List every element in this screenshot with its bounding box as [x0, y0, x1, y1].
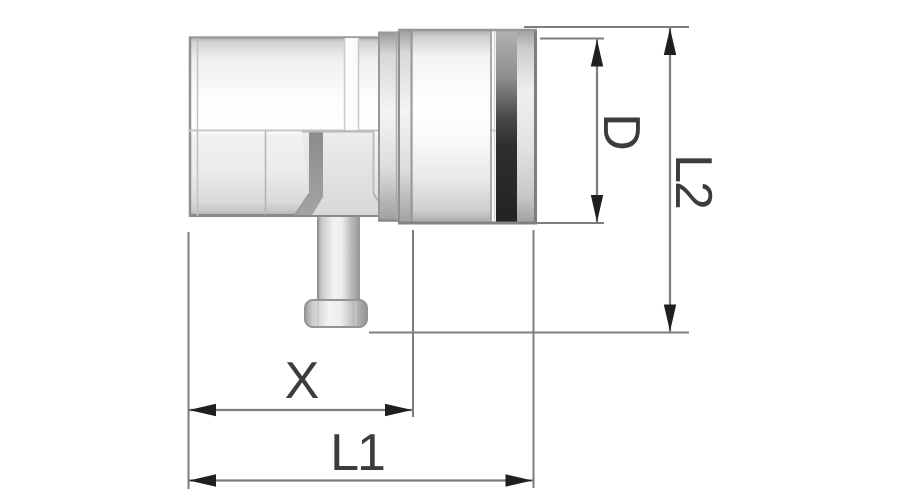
label-d: D [592, 113, 650, 149]
arrow-l2-bottom [664, 305, 676, 332]
arrow-l2-top [664, 28, 676, 55]
socket-end [378, 29, 537, 224]
drain-spigot [305, 217, 367, 327]
arrow-l1-left [189, 474, 216, 486]
arrow-l1-right [506, 474, 533, 486]
label-l1: L1 [330, 424, 384, 482]
drain-spigot-barb [305, 300, 367, 327]
socket-body [413, 29, 490, 224]
gasket-ring [496, 29, 517, 224]
arrow-d-bottom [591, 195, 603, 222]
socket-step-ring [378, 32, 398, 221]
label-l2: L2 [664, 154, 722, 208]
arrow-x-right [385, 404, 412, 416]
arrow-d-top [591, 40, 603, 67]
drain-spigot-pipe [317, 217, 360, 302]
label-x: X [285, 352, 319, 410]
technical-drawing-canvas: X L1 D L2 [0, 0, 900, 500]
branch-upper-band [345, 38, 358, 130]
pipe-fitting-drawing: X L1 D L2 [0, 0, 900, 500]
arrow-x-left [189, 404, 216, 416]
